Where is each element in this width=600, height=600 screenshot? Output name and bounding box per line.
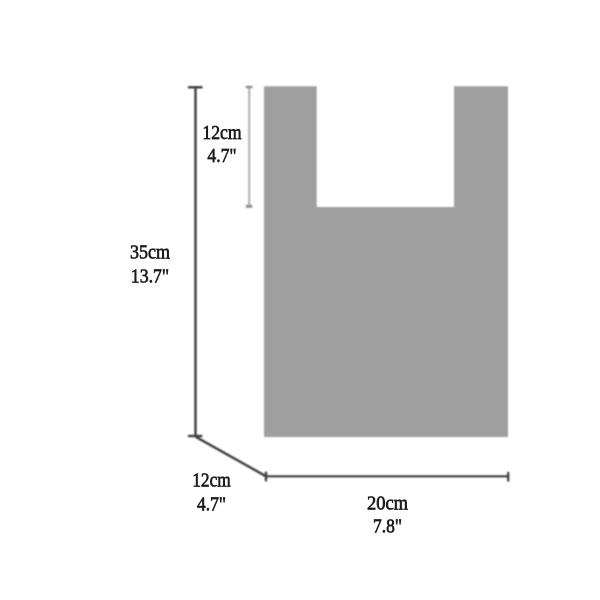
svg-text:12cm: 12cm [202, 122, 241, 144]
svg-text:35cm: 35cm [130, 242, 170, 264]
svg-text:4.7": 4.7" [197, 494, 226, 516]
svg-text:20cm: 20cm [367, 493, 408, 515]
svg-text:13.7": 13.7" [131, 266, 169, 288]
svg-text:12cm: 12cm [192, 470, 231, 492]
svg-text:4.7": 4.7" [207, 145, 236, 167]
svg-text:7.8": 7.8" [373, 516, 402, 538]
